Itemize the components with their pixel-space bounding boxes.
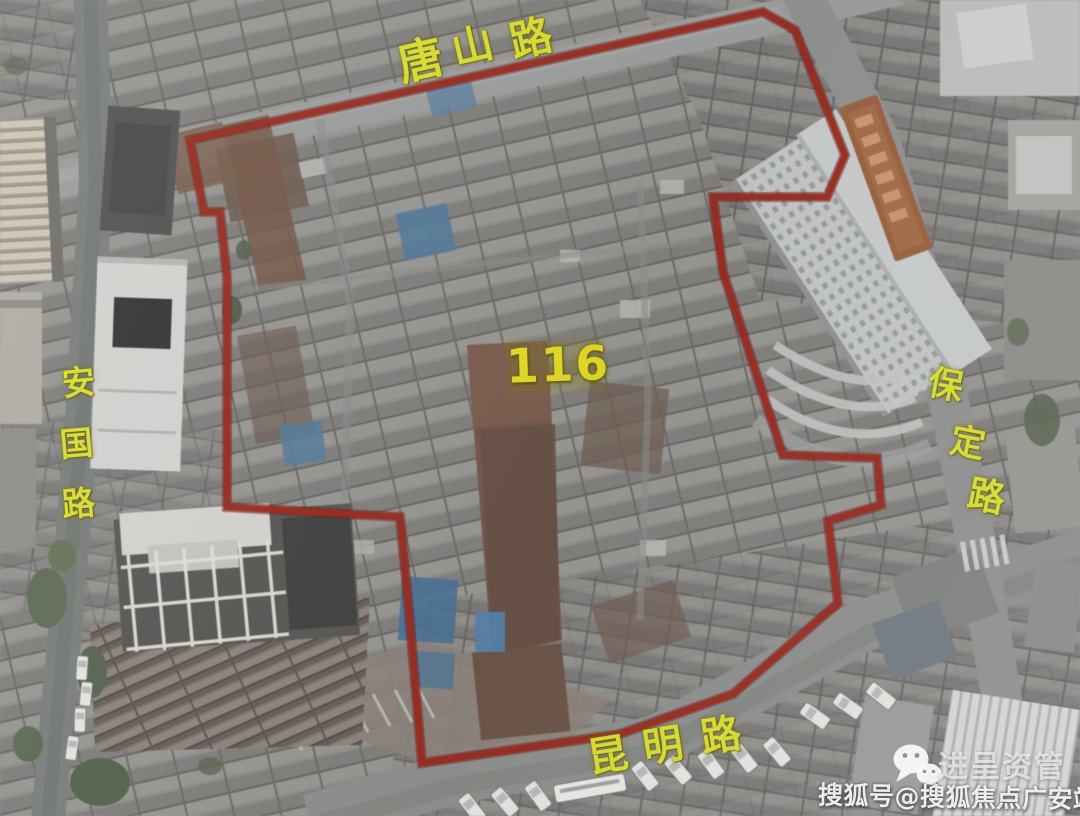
road-label-char: 国 (59, 426, 95, 462)
road-label-char: 路 (506, 14, 556, 64)
road-label-char: 路 (61, 486, 97, 522)
road-label-char: 定 (947, 424, 988, 465)
road-label-char: 路 (698, 713, 744, 759)
road-label-char: 唐 (394, 34, 448, 88)
plot-number-label: 116 (505, 336, 611, 394)
road-label-char: 昆 (585, 733, 631, 779)
watermark-account: 搜狐号@搜狐焦点广安站 (818, 776, 1080, 816)
road-label-char: 明 (640, 723, 686, 769)
road-label-char: 山 (448, 22, 497, 71)
road-label-char: 安 (61, 365, 97, 401)
aerial-photo: 唐 山 路 安 国 路 保 定 路 昆 明 路 116 进呈资管 搜狐号 (0, 0, 1080, 816)
aerial-scene (0, 0, 1080, 816)
road-label-char: 保 (925, 366, 966, 407)
road-label-char: 路 (965, 475, 1008, 518)
